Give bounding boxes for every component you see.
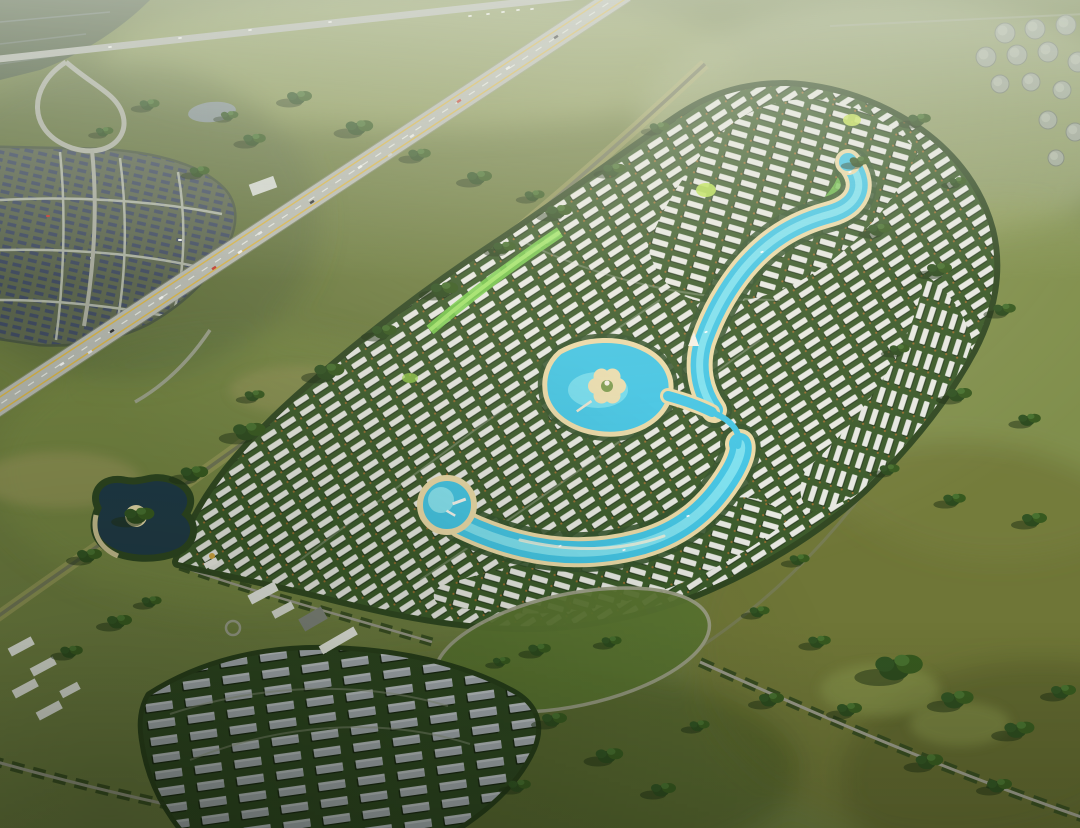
- aerial-render-stage: [0, 0, 1080, 828]
- aerial-render-image: [0, 0, 1080, 828]
- corner-vignette-overlay: [0, 0, 1080, 828]
